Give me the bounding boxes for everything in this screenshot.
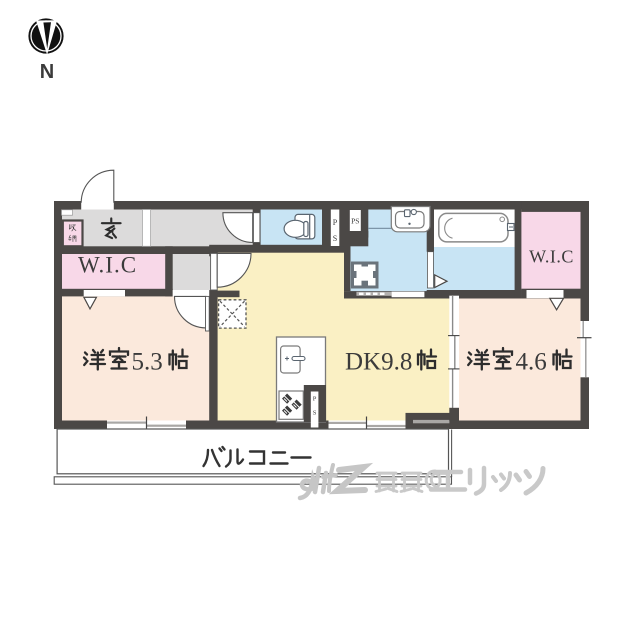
svg-text:5.3: 5.3	[132, 349, 163, 376]
svg-text:P: P	[313, 396, 317, 403]
svg-text:DK9.8: DK9.8	[345, 349, 412, 376]
svg-text:PS: PS	[351, 217, 359, 226]
svg-text:W.I.C: W.I.C	[529, 247, 574, 267]
svg-text:4.6: 4.6	[516, 349, 547, 376]
svg-text:S: S	[313, 410, 317, 417]
svg-text:N: N	[40, 61, 54, 83]
svg-text:S: S	[333, 234, 337, 243]
svg-text:W.I.C: W.I.C	[78, 253, 137, 278]
svg-text:P: P	[333, 218, 338, 227]
